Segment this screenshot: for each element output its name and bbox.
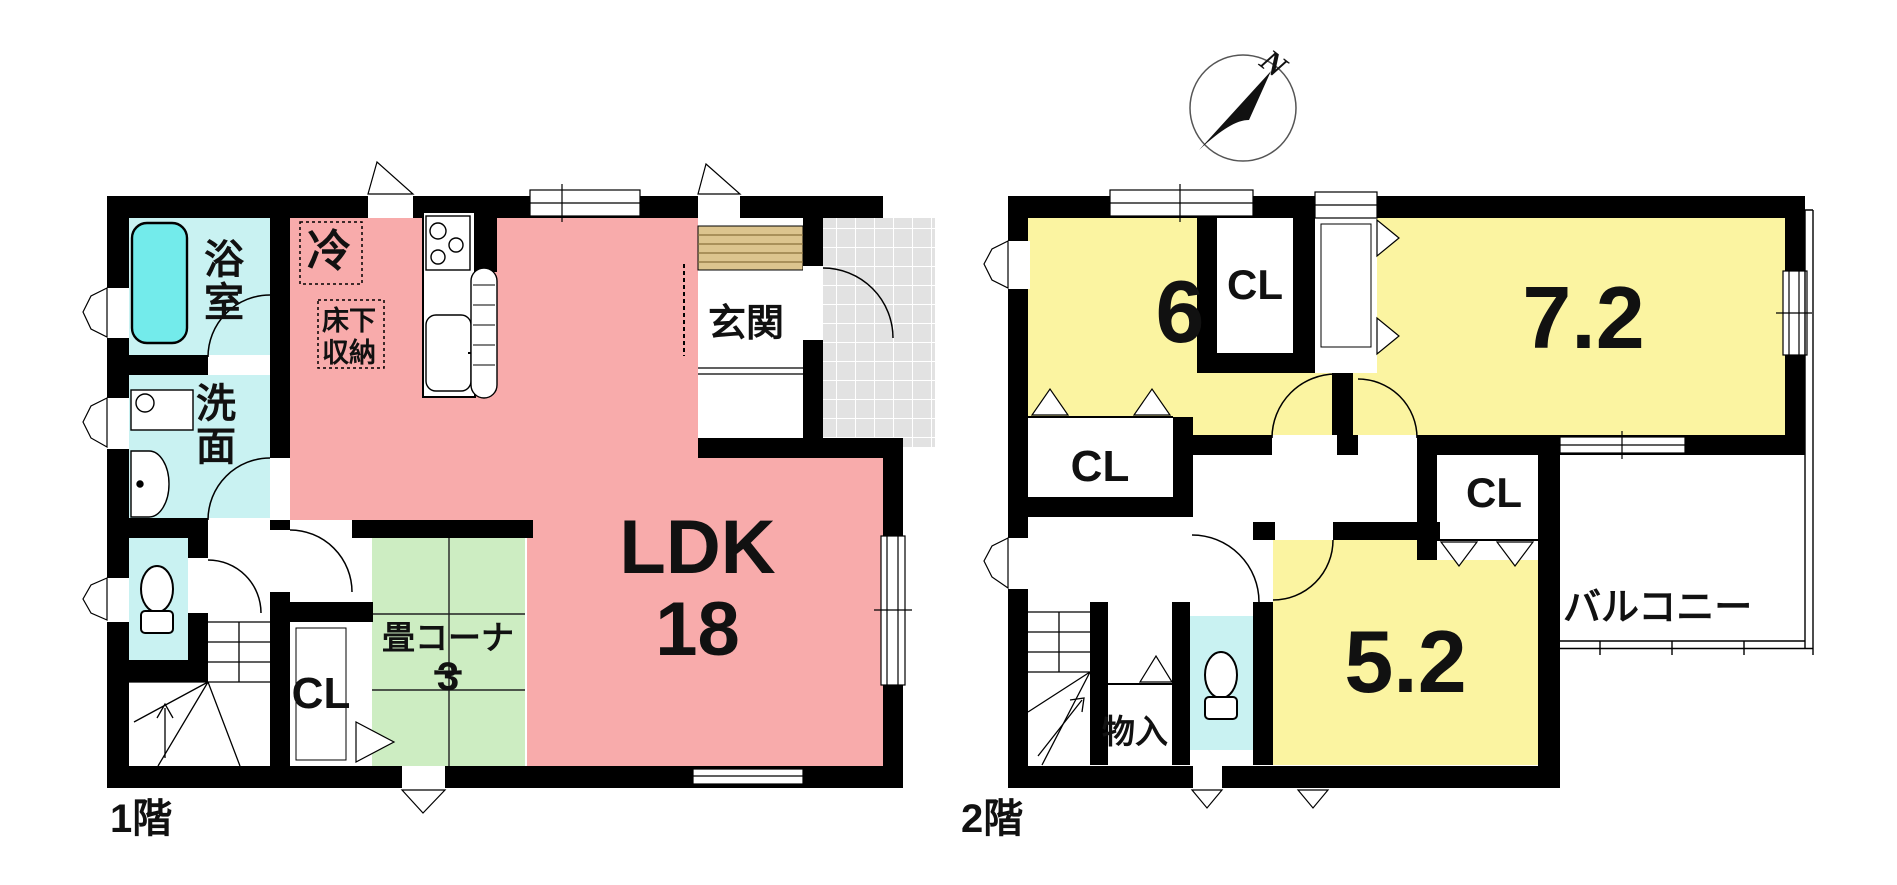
toilet1-door-arc xyxy=(208,560,261,613)
window-closet-icon xyxy=(1315,192,1377,218)
entrance-step xyxy=(698,226,803,270)
closet2f-right-inner xyxy=(1321,224,1371,347)
window-chevron-icon xyxy=(698,164,740,194)
label-closet-1f: CL xyxy=(288,670,354,718)
label-tatami-size: 3 xyxy=(368,655,528,699)
window-top-sliding-icon xyxy=(1110,184,1253,222)
kitchen-sink xyxy=(426,315,471,391)
window-awning-icon xyxy=(83,398,107,447)
label-ldk: LDK xyxy=(595,506,800,590)
label-storage: 物入 xyxy=(1102,714,1168,750)
vanity-sink xyxy=(131,451,169,517)
stairs-2f xyxy=(1028,612,1090,765)
vent-chevron-down-icon xyxy=(402,790,445,813)
label-closet-2f-b: CL xyxy=(1215,262,1295,308)
hall-ldk-door-arc xyxy=(290,530,352,592)
label-refrigerator: 冷 xyxy=(307,228,351,276)
label-entrance: 玄関 xyxy=(708,304,784,346)
caption-floor2: 2階 xyxy=(961,797,1023,841)
floor-plan-drawing xyxy=(0,0,1897,885)
label-underfloor-storage: 床下収納 xyxy=(322,306,382,370)
window-awning-icon xyxy=(83,578,107,620)
label-room72: 7.2 xyxy=(1496,270,1671,367)
window-awning-icon xyxy=(83,288,107,337)
caption-floor1: 1階 xyxy=(110,797,172,841)
counter-end xyxy=(471,268,497,398)
porch-tiles xyxy=(823,218,935,447)
vent-chevron-down-icon xyxy=(1192,790,1222,808)
closet-chevron-icon xyxy=(1140,656,1172,682)
label-ldk-size: 18 xyxy=(595,588,800,672)
label-closet-2f-c: CL xyxy=(1448,470,1540,516)
washing-machine-pan xyxy=(131,390,193,430)
window-top-sliding-icon xyxy=(530,184,640,222)
floor-plan-image: 浴室 洗面 冷 床下収納 玄関 LDK 18 畳コーナー 3 CL 1階 6 C… xyxy=(0,0,1897,885)
window-bottom-sliding-icon xyxy=(693,769,803,784)
toilet2-door-arc xyxy=(1192,535,1259,602)
window-chevron-icon xyxy=(368,162,413,194)
toilet1 xyxy=(141,566,173,633)
vent-chevron-down-icon xyxy=(1298,790,1328,808)
label-washroom: 洗面 xyxy=(190,382,234,468)
label-closet-2f-a: CL xyxy=(1060,443,1140,491)
label-bath: 浴室 xyxy=(198,238,242,324)
toilet2 xyxy=(1205,652,1237,719)
label-balcony: バルコニー xyxy=(1563,588,1752,630)
window-awning-icon xyxy=(984,241,1008,288)
tatami-top-wall xyxy=(352,520,533,538)
label-room52: 5.2 xyxy=(1318,614,1493,711)
window-awning-icon xyxy=(984,538,1008,588)
bathtub xyxy=(132,223,187,343)
